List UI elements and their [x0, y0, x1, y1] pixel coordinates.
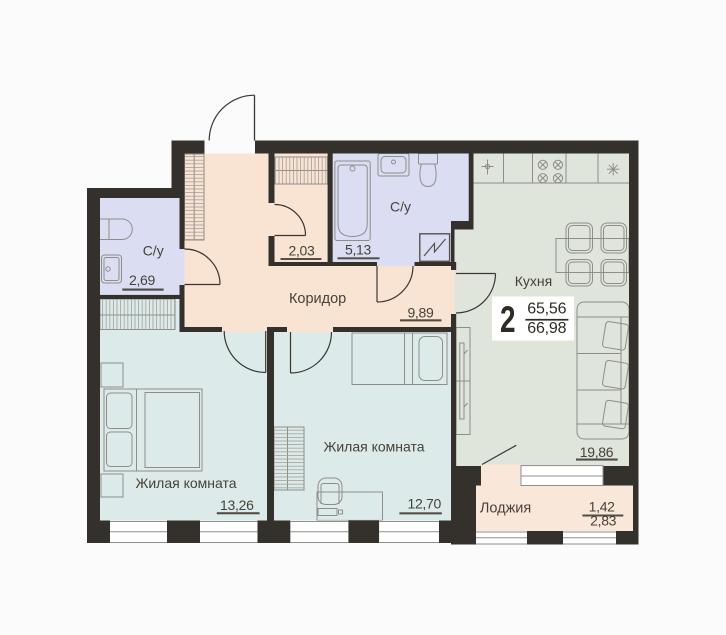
- svg-text:Лоджия: Лоджия: [480, 501, 531, 517]
- svg-text:2,03: 2,03: [288, 243, 315, 259]
- svg-text:5,13: 5,13: [345, 242, 372, 258]
- svg-text:12,70: 12,70: [407, 496, 441, 512]
- svg-text:13,26: 13,26: [220, 497, 254, 513]
- svg-text:65,56: 65,56: [527, 301, 566, 318]
- svg-text:Коридор: Коридор: [289, 291, 346, 307]
- svg-text:19,86: 19,86: [580, 444, 614, 460]
- svg-text:2,83: 2,83: [590, 513, 617, 529]
- svg-text:С/у: С/у: [143, 243, 164, 259]
- svg-text:Жилая комната: Жилая комната: [323, 439, 424, 455]
- svg-text:2,69: 2,69: [129, 272, 156, 288]
- svg-text:Жилая комната: Жилая комната: [135, 475, 236, 491]
- svg-text:9,89: 9,89: [407, 305, 434, 321]
- svg-text:2: 2: [500, 299, 516, 340]
- svg-text:66,98: 66,98: [527, 320, 566, 337]
- svg-text:Кухня: Кухня: [515, 273, 552, 289]
- svg-text:С/у: С/у: [390, 199, 411, 215]
